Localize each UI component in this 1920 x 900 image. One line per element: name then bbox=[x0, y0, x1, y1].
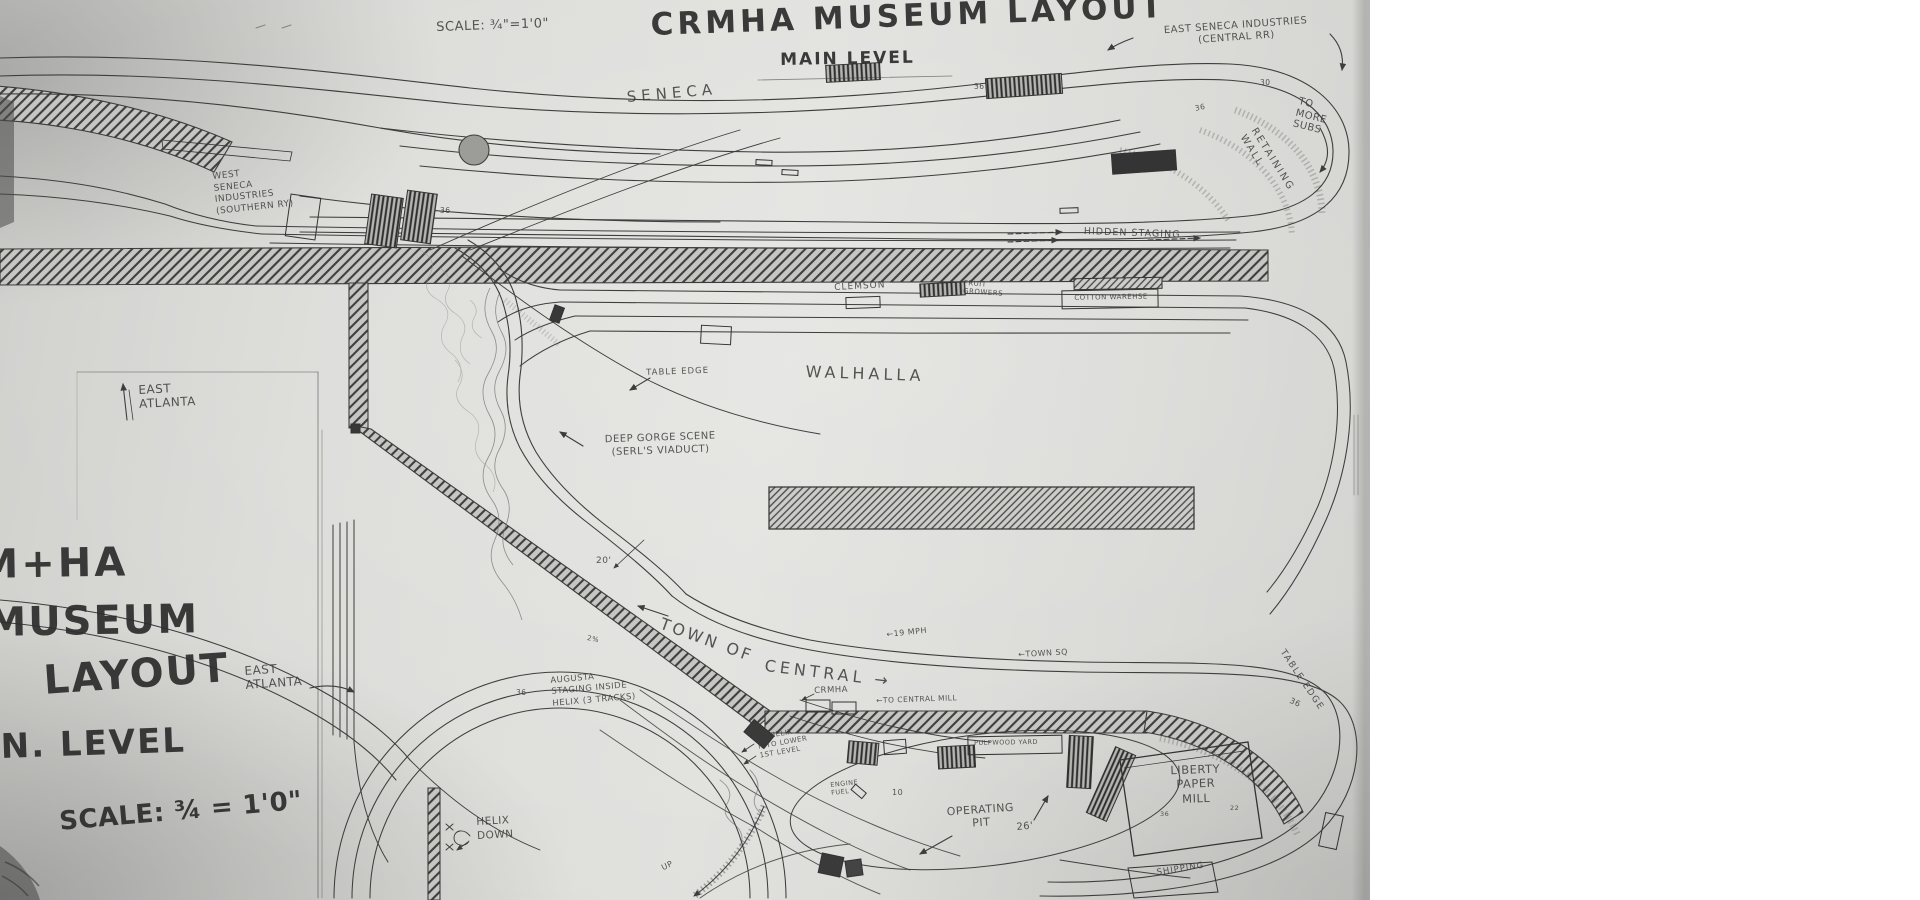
photo-edge-shadows bbox=[0, 96, 40, 900]
empty-margin bbox=[1370, 0, 1920, 900]
east-seneca-arrow-left bbox=[1108, 38, 1133, 50]
label-walhalla: WALHALLA bbox=[805, 362, 925, 386]
town-building-3 bbox=[937, 745, 975, 769]
building-staging bbox=[1111, 150, 1176, 174]
crmha-arrow bbox=[802, 694, 814, 700]
west-seneca-building-1 bbox=[365, 194, 404, 248]
helix-down-arrow bbox=[457, 842, 468, 850]
car-1 bbox=[756, 160, 772, 166]
town-building-1 bbox=[847, 741, 879, 766]
gorge-river bbox=[483, 288, 522, 620]
warehouse-annex bbox=[1074, 277, 1162, 290]
label-num-36-b: 36 bbox=[974, 82, 985, 91]
label-dim-26: 26' bbox=[1016, 821, 1034, 835]
table-edge-arrow bbox=[630, 378, 650, 390]
building-top-right bbox=[985, 73, 1062, 98]
to-helix-arrow-1 bbox=[742, 744, 754, 752]
label-fruit-growers: FRUIT GROWERS bbox=[963, 279, 1004, 299]
fruit-growers-building bbox=[920, 282, 966, 297]
top-tiny-marks bbox=[256, 25, 291, 28]
trackplan-photo: CRMHA MUSEUM LAYOUT bbox=[0, 0, 1370, 900]
label-cotton-warehouse: COTTON WAREHSE bbox=[1066, 292, 1156, 302]
dim-20-arrow bbox=[614, 540, 644, 568]
tunnel-portal bbox=[550, 305, 565, 323]
walhalla-depot bbox=[701, 325, 732, 345]
label-dim-20: 20' bbox=[596, 556, 611, 567]
screenshot: CRMHA MUSEUM LAYOUT bbox=[0, 0, 1920, 900]
label-crmha-bldg: CRMHA bbox=[814, 685, 848, 697]
backdrop-divider bbox=[769, 487, 1194, 529]
label-augusta-staging: AUGUSTA STAGING INSIDE HELIX (3 TRACKS) bbox=[550, 669, 636, 711]
car-3 bbox=[1060, 208, 1078, 214]
label-engine-fuel: ENGINE FUEL bbox=[830, 779, 859, 797]
label-num-36-mill: 36 bbox=[1160, 810, 1169, 818]
town-building-5 bbox=[818, 853, 844, 877]
label-dim-10: 10 bbox=[892, 788, 903, 798]
label-num-36-d: 36 bbox=[516, 688, 527, 697]
label-big-level: N. LEVEL bbox=[0, 720, 187, 769]
label-east-atlanta-mid: EAST ATLANTA bbox=[244, 660, 303, 693]
label-num-22-mill: 22 bbox=[1230, 804, 1239, 812]
label-num-30: 30 bbox=[1260, 78, 1271, 87]
label-west-seneca-industries: WEST SENECA INDUSTRIES (SOUTHERN RY) bbox=[212, 164, 294, 219]
label-big-crmha: M+HA bbox=[0, 537, 129, 590]
mill-warehouse-2 bbox=[1086, 747, 1135, 822]
portal-blob bbox=[351, 424, 360, 433]
to-helix-arrow-2 bbox=[744, 756, 756, 764]
east-seneca-arrow-right bbox=[1330, 34, 1343, 70]
hidden-staging-tracks bbox=[0, 176, 1240, 249]
town-building-6 bbox=[845, 859, 863, 877]
label-main-level: MAIN LEVEL bbox=[780, 48, 915, 72]
label-helix-down: HELIX DOWN bbox=[476, 814, 514, 843]
east-atlanta-up-arrow bbox=[123, 384, 127, 420]
car-2 bbox=[782, 170, 798, 176]
gorge-arrow bbox=[560, 432, 583, 446]
label-num-36-a: 36 bbox=[440, 206, 451, 215]
small-right-structure bbox=[1319, 813, 1344, 850]
label-pulpwood: PULPWOOD YARD bbox=[974, 738, 1038, 747]
label-east-atlanta-top: EAST ATLANTA bbox=[138, 380, 196, 412]
pit-arrow-ne bbox=[1034, 796, 1048, 820]
label-table-edge-mid: TABLE EDGE bbox=[646, 366, 709, 379]
west-seneca-building-2 bbox=[401, 190, 438, 244]
clemson-depot bbox=[846, 296, 880, 308]
label-deep-gorge: DEEP GORGE SCENE (SERL'S VIADUCT) bbox=[585, 429, 736, 460]
photo-right-edge bbox=[1352, 0, 1370, 900]
contour-scribbles bbox=[420, 250, 495, 492]
east-atlanta-up-arrow-2 bbox=[129, 390, 133, 420]
label-big-museum: MUSEUM bbox=[0, 594, 200, 648]
helix-spiral bbox=[454, 831, 470, 845]
mill-warehouse-1 bbox=[1067, 735, 1094, 788]
label-liberty-paper-mill: LIBERTY PAPER MILL bbox=[1150, 761, 1241, 807]
